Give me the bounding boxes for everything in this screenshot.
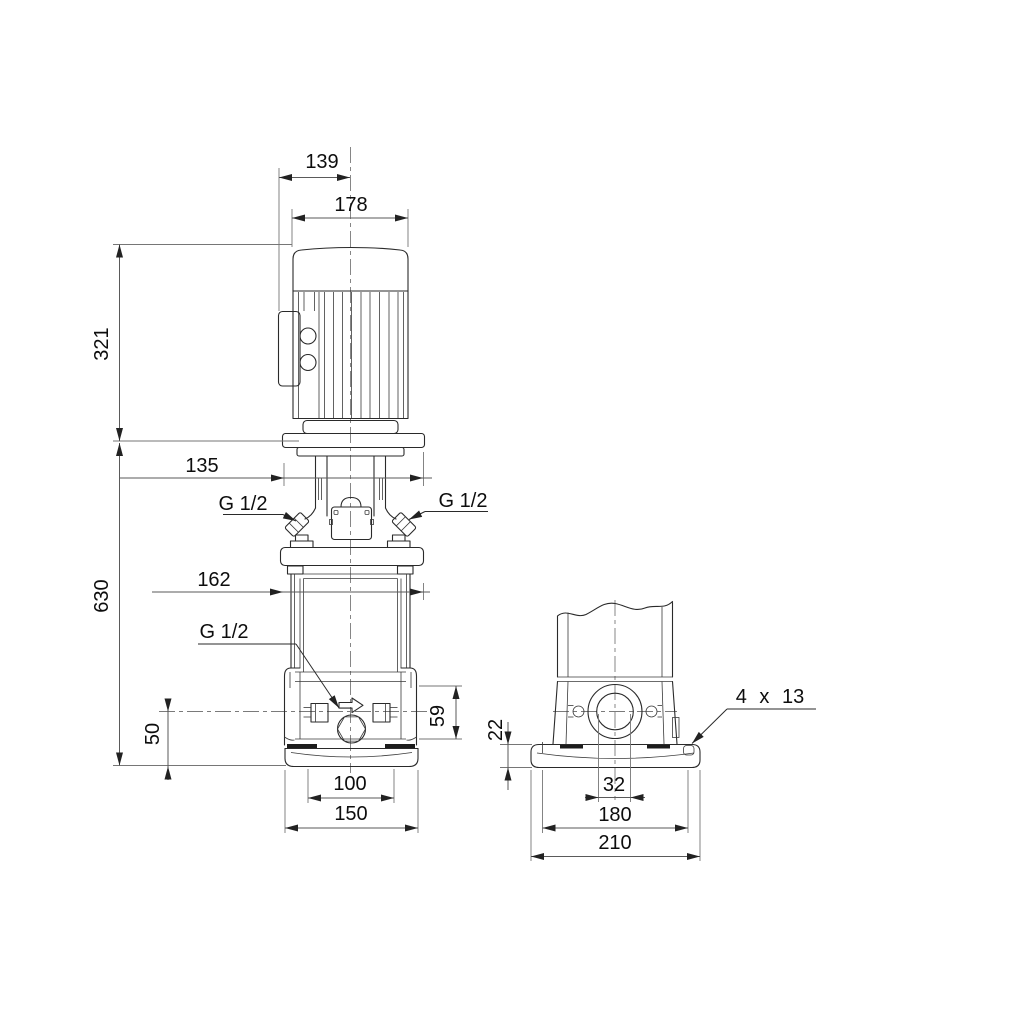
dim-label-210: 210: [598, 832, 631, 854]
foot-pad-left: [287, 744, 317, 749]
dim-label-100: 100: [333, 773, 366, 795]
callout-g12-right: G 1/2: [409, 490, 488, 520]
flow-direction-arrow: [339, 698, 363, 713]
port-label-right: G 1/2: [439, 490, 488, 512]
bolt-holes-label: 4 x 13: [736, 686, 804, 708]
coupling-dome: [341, 498, 361, 508]
base-front: [285, 744, 418, 767]
dim-label-630: 630: [91, 579, 113, 612]
dimension-59: 59: [419, 686, 462, 739]
air-vent-plug-left: [285, 512, 310, 537]
dim-label-178: 178: [334, 194, 367, 216]
dimension-139: 139: [279, 151, 350, 311]
cable-entry-top: [300, 328, 316, 344]
base-side: [531, 742, 700, 768]
pump-dimensional-drawing: 139 178 321 630 135 16: [0, 0, 1024, 1024]
cable-entry-bottom: [300, 355, 316, 371]
dimension-50: 50: [142, 700, 168, 780]
dim-label-180: 180: [598, 804, 631, 826]
dimension-321: 321: [91, 245, 299, 442]
dimension-100: 100: [308, 769, 394, 803]
drawing-canvas: 139 178 321 630 135 16: [0, 0, 1024, 1024]
port-label-left: G 1/2: [219, 493, 268, 515]
dim-label-150: 150: [334, 803, 367, 825]
dim-label-50: 50: [142, 723, 164, 745]
dim-label-321: 321: [91, 327, 113, 360]
dimension-630: 630: [91, 443, 286, 766]
dim-label-139: 139: [305, 151, 338, 173]
staybolt-nut-left: [288, 566, 304, 574]
coupling-block: [330, 507, 374, 540]
stool-flange-upper: [283, 434, 425, 448]
callout-bolt-holes: 4 x 13: [692, 686, 816, 744]
side-view: 22 32 180 210 4 x 13: [485, 600, 816, 861]
foot-pad-right: [385, 744, 415, 749]
dim-label-135: 135: [185, 455, 218, 477]
terminal-box: [279, 312, 317, 387]
callout-g12-drain: G 1/2: [198, 621, 339, 708]
pump-head: [281, 434, 425, 575]
dimension-22: 22: [485, 719, 532, 790]
head-flange: [281, 548, 424, 566]
callout-g12-left: G 1/2: [219, 493, 296, 521]
air-vent-plug-right: [392, 512, 417, 537]
plug-boss-left: [291, 535, 314, 548]
motor: [279, 248, 409, 434]
staybolt-nut-right: [398, 566, 414, 574]
dim-label-22: 22: [485, 719, 507, 741]
plug-boss-right: [388, 535, 411, 548]
dim-label-59: 59: [427, 705, 449, 727]
side-port-left: [304, 704, 329, 723]
dim-label-32: 32: [603, 774, 625, 796]
front-view: 139 178 321 630 135 16: [91, 147, 488, 833]
drain-port-label: G 1/2: [200, 621, 249, 643]
side-port-right: [373, 704, 398, 723]
motor-fins: [299, 292, 404, 418]
dim-label-162: 162: [197, 569, 230, 591]
dimension-178: 178: [292, 194, 408, 247]
